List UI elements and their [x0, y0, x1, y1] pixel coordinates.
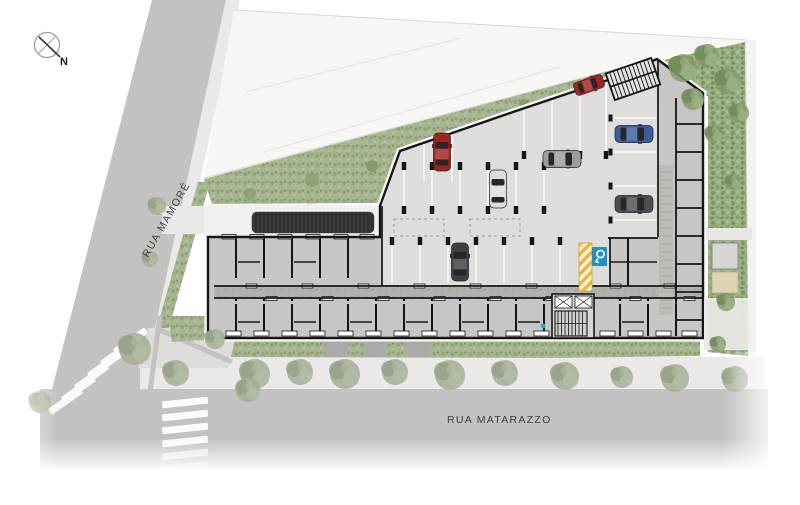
annex-pavilion: [712, 243, 738, 269]
tree-icon: [704, 125, 723, 143]
plaza-green-patch: [168, 316, 208, 342]
site-plan-page: RUA MAMORÉ RUA MATARAZZO N: [0, 0, 800, 505]
compass-north-label: N: [60, 56, 68, 68]
car-icon: [615, 124, 653, 144]
accessible-parking-sign: [592, 247, 607, 266]
safety-strip: [579, 243, 592, 291]
utility-marker: [541, 324, 546, 329]
circulation-core: [552, 294, 594, 338]
vehicle-ramp: [252, 212, 374, 233]
north-compass: N: [35, 33, 69, 69]
compass-icon: [35, 33, 61, 58]
car-icon: [615, 194, 653, 214]
car-icon: [488, 170, 508, 208]
site-plan: RUA MAMORÉ RUA MATARAZZO N: [0, 0, 800, 505]
lot-edge-shadow: [748, 40, 756, 358]
car-icon: [450, 243, 470, 281]
car-icon: [543, 149, 581, 169]
street-label-matarazzo: RUA MATARAZZO: [447, 414, 552, 426]
car-icon: [432, 133, 452, 171]
annex-patio: [712, 272, 738, 293]
stairs-icon: [555, 311, 587, 336]
ramp-area: [162, 205, 382, 237]
